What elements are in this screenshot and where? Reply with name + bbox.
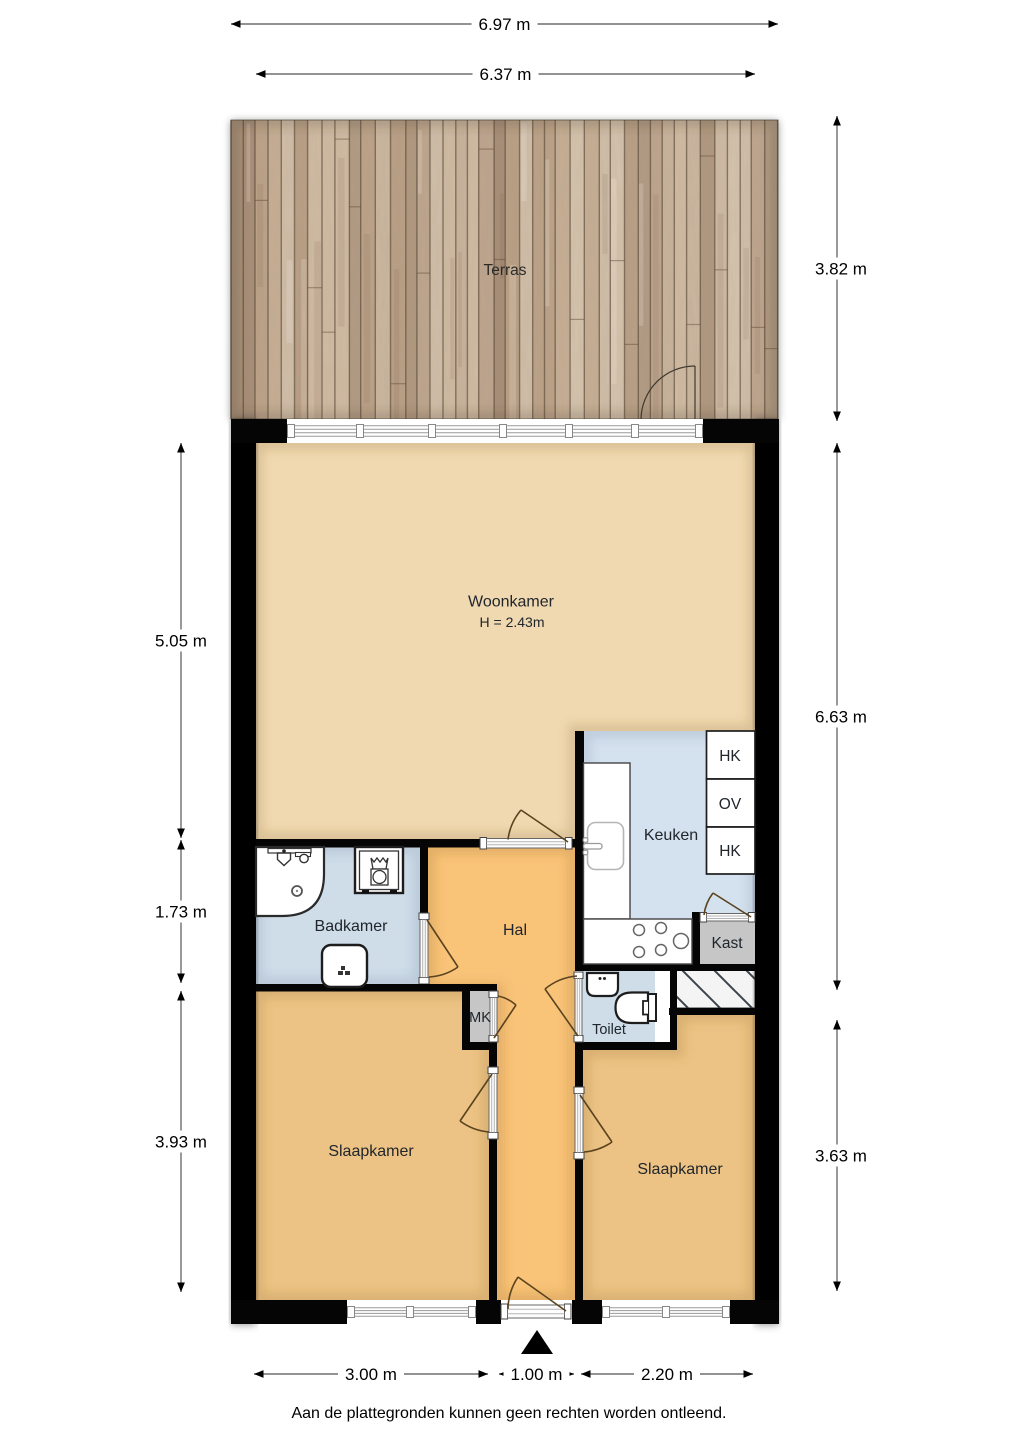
svg-text:Keuken: Keuken: [644, 827, 698, 844]
svg-text:3.00 m: 3.00 m: [345, 1365, 397, 1384]
svg-text:Terras: Terras: [483, 262, 526, 279]
svg-text:1.00 m: 1.00 m: [511, 1365, 563, 1384]
svg-text:Toilet: Toilet: [592, 1022, 626, 1038]
svg-text:HK: HK: [719, 748, 741, 765]
svg-text:MK: MK: [469, 1010, 491, 1026]
svg-text:Badkamer: Badkamer: [315, 918, 389, 935]
svg-text:Slaapkamer: Slaapkamer: [328, 1143, 414, 1160]
svg-text:6.97 m: 6.97 m: [479, 15, 531, 34]
svg-text:OV: OV: [719, 796, 742, 813]
svg-text:2.20 m: 2.20 m: [641, 1365, 693, 1384]
svg-text:5.05 m: 5.05 m: [155, 632, 207, 651]
svg-text:3.63 m: 3.63 m: [815, 1147, 867, 1166]
svg-text:Woonkamer: Woonkamer: [468, 594, 555, 611]
svg-text:3.82 m: 3.82 m: [815, 260, 867, 279]
svg-text:6.63 m: 6.63 m: [815, 708, 867, 727]
svg-text:Aan de plattegronden kunnen ge: Aan de plattegronden kunnen geen rechten…: [291, 1405, 726, 1422]
svg-text:Hal: Hal: [503, 922, 527, 939]
svg-text:1.73 m: 1.73 m: [155, 903, 207, 922]
svg-text:Kast: Kast: [711, 935, 743, 952]
svg-text:Slaapkamer: Slaapkamer: [637, 1161, 723, 1178]
svg-text:6.37 m: 6.37 m: [480, 65, 532, 84]
svg-text:3.93 m: 3.93 m: [155, 1133, 207, 1152]
svg-text:HK: HK: [719, 843, 741, 860]
svg-text:H = 2.43m: H = 2.43m: [480, 614, 545, 630]
